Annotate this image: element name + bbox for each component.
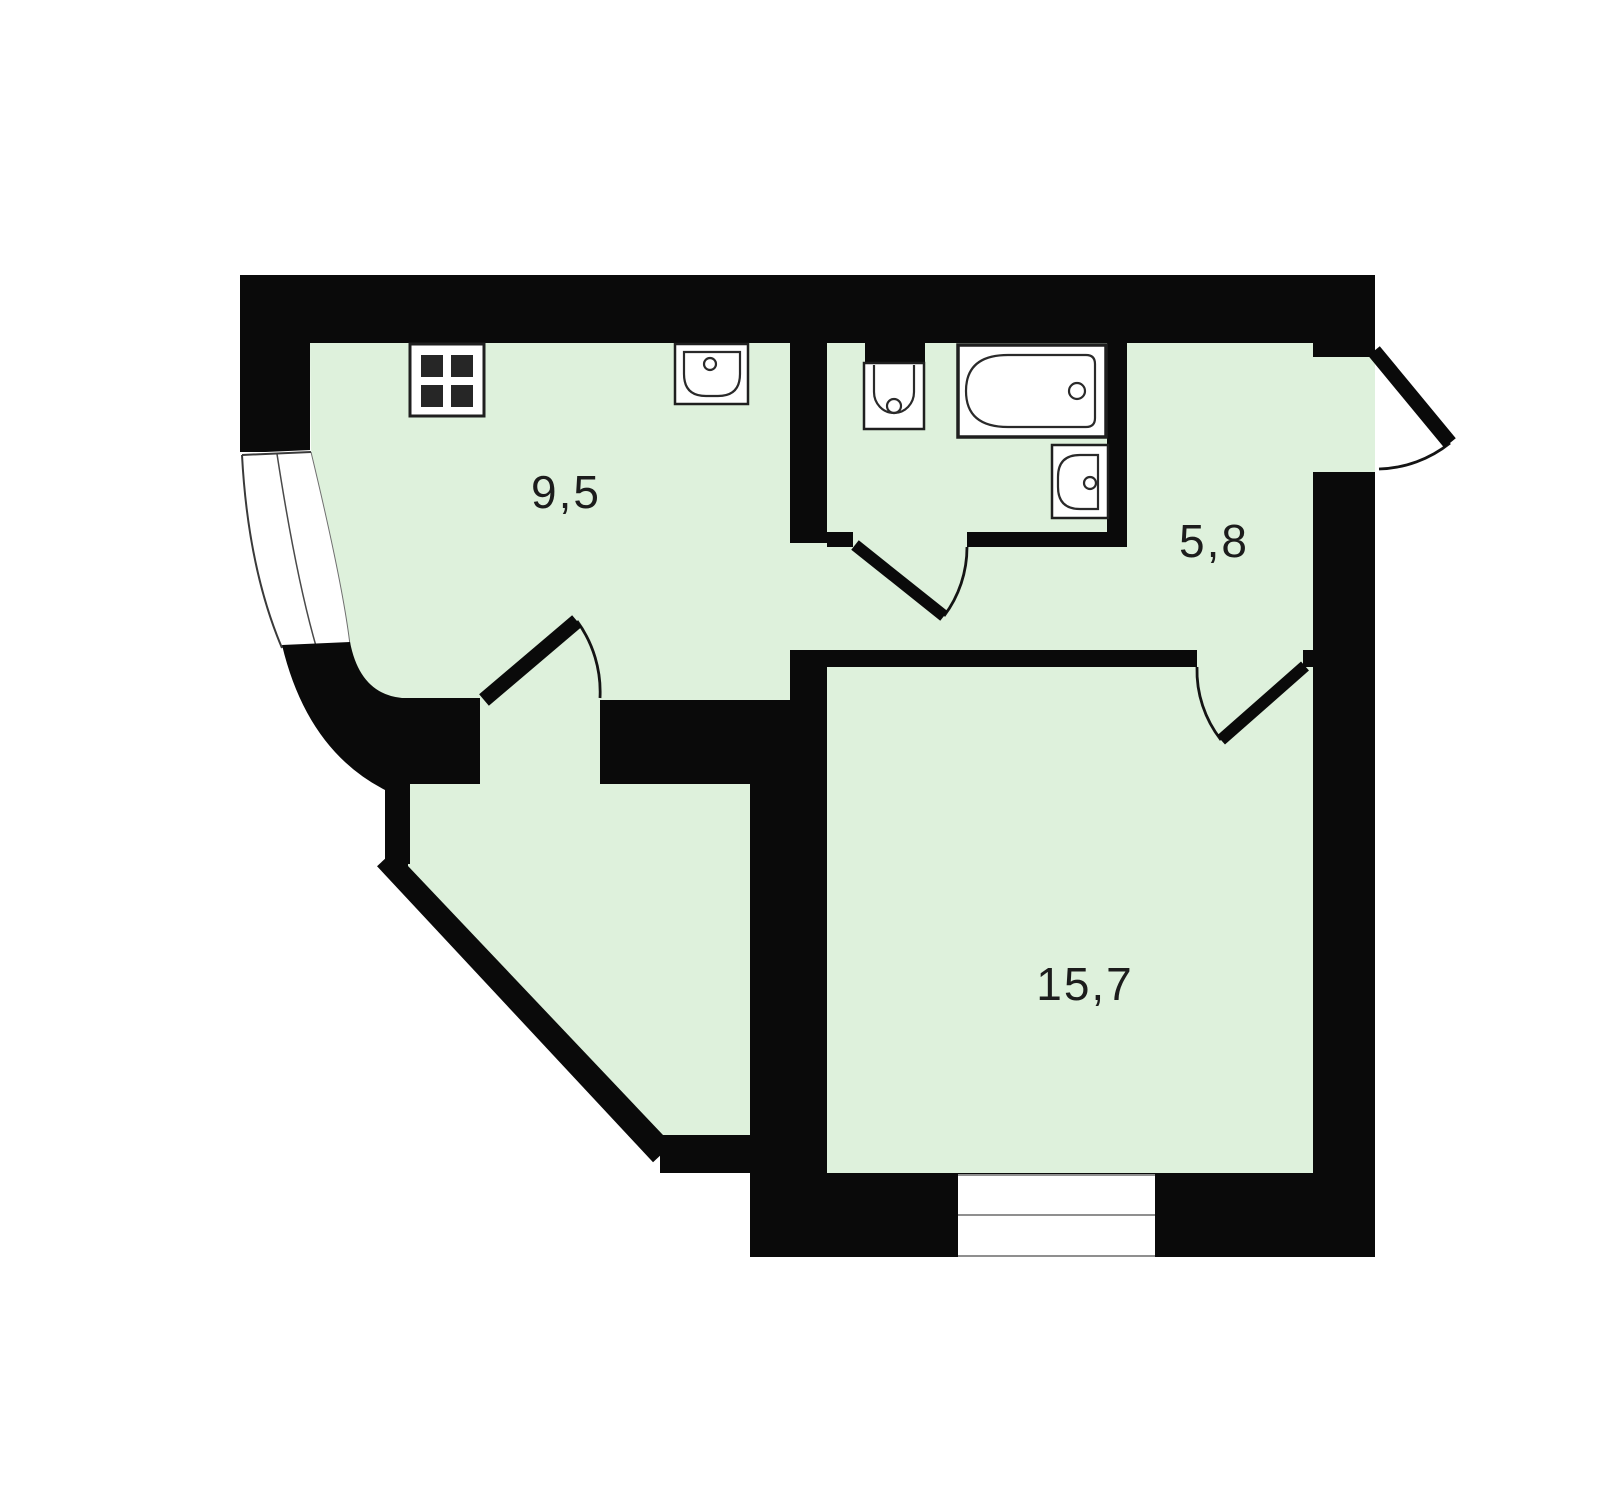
hallway-area-label: 5,8 <box>1179 515 1249 567</box>
bathtub-icon <box>958 345 1106 437</box>
living-room-area-label: 15,7 <box>1036 958 1134 1010</box>
left-exterior-wall <box>240 275 310 452</box>
bathroom-sink-icon <box>1052 445 1108 518</box>
kitchen-bottom-wall <box>600 700 790 784</box>
living-room-window <box>958 1174 1155 1258</box>
stove-burner <box>451 385 473 407</box>
bathtub-body <box>958 345 1106 437</box>
kitchen-area-label: 9,5 <box>531 466 601 518</box>
living-room-door-jamb <box>1303 650 1313 667</box>
bathroom-bottom-wall-left <box>827 532 853 547</box>
stove-burner <box>451 355 473 377</box>
living-room-top-wall <box>790 650 1197 667</box>
toilet-shaft-wall <box>865 343 925 364</box>
stove-icon <box>410 344 484 416</box>
living-room-room <box>827 667 1313 1173</box>
kitchen-sink-icon <box>675 344 748 404</box>
toilet-icon <box>864 363 924 429</box>
stove-burner <box>421 385 443 407</box>
living-room-left-wall-lower <box>750 784 827 1173</box>
stove-burner <box>421 355 443 377</box>
top-exterior-wall <box>240 275 1375 343</box>
living-room-left-wall-upper <box>790 650 827 784</box>
kitchen-bathroom-wall <box>790 343 827 543</box>
bathroom-hallway-wall <box>1107 343 1127 547</box>
kitchen-door-passage <box>480 698 600 786</box>
bathroom-door-passage <box>853 530 967 549</box>
bottom-left-corner-wall <box>660 1135 750 1173</box>
floor-plan: 9,5 5,8 15,7 <box>0 0 1600 1500</box>
floor-plan-canvas: 9,5 5,8 15,7 <box>0 0 1600 1500</box>
right-exterior-wall <box>1313 472 1375 1257</box>
living-room-door-passage <box>1197 648 1303 669</box>
entrance-top-jamb <box>1313 343 1375 357</box>
bathroom-bottom-wall-right <box>967 532 1127 547</box>
